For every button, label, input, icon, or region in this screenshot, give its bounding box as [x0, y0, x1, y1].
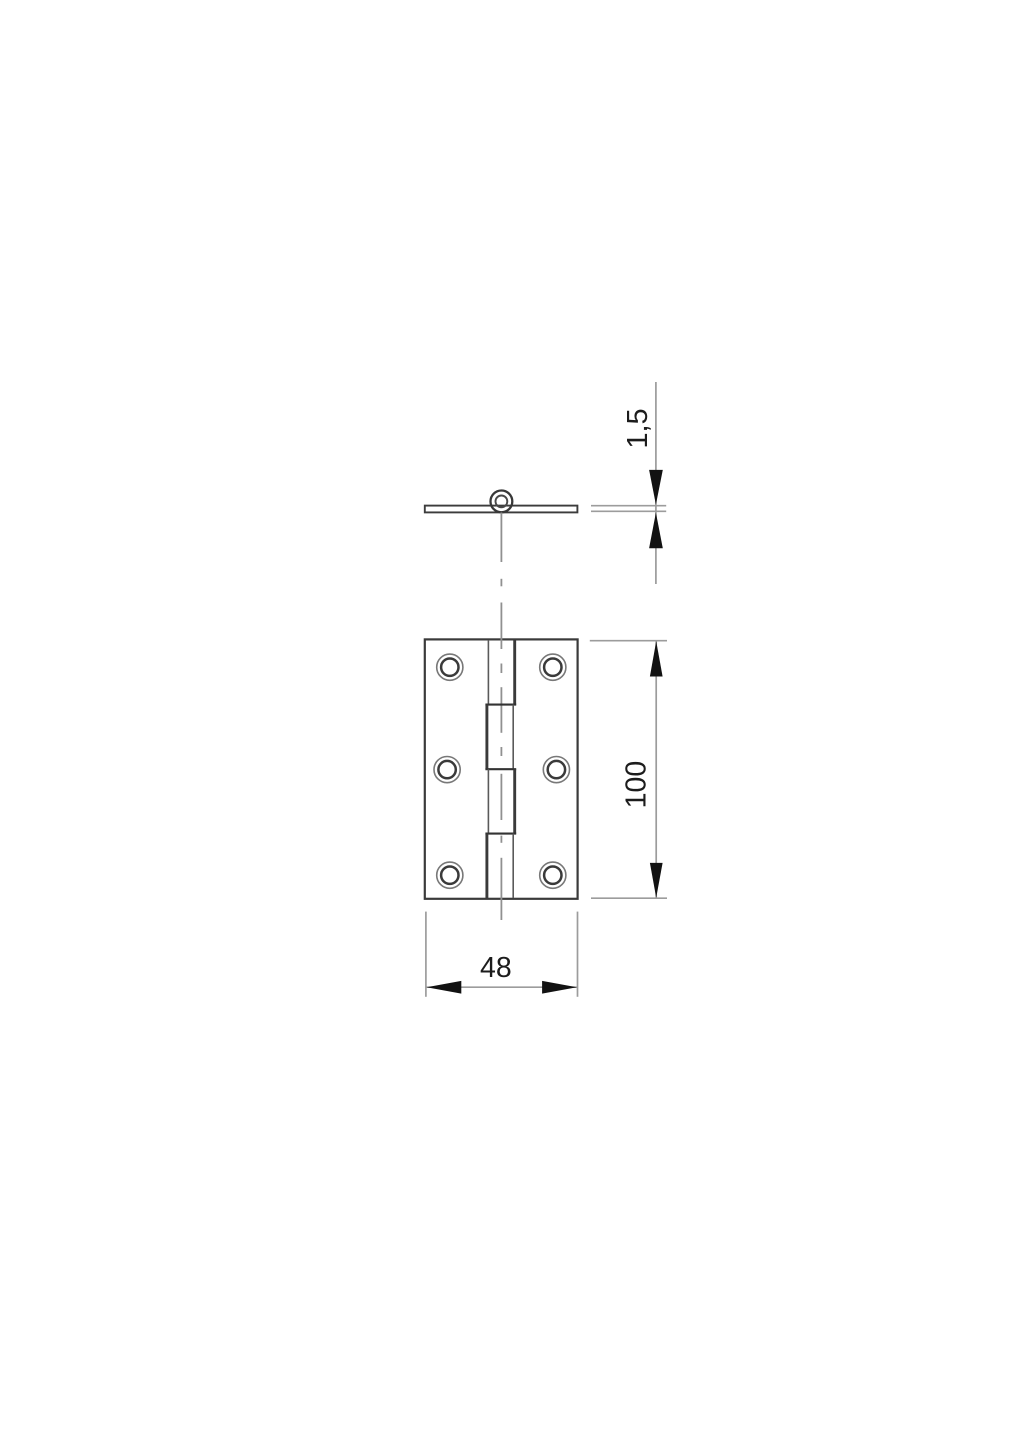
svg-text:48: 48 [480, 952, 512, 984]
svg-text:1,5: 1,5 [622, 408, 654, 448]
svg-text:100: 100 [621, 761, 653, 809]
